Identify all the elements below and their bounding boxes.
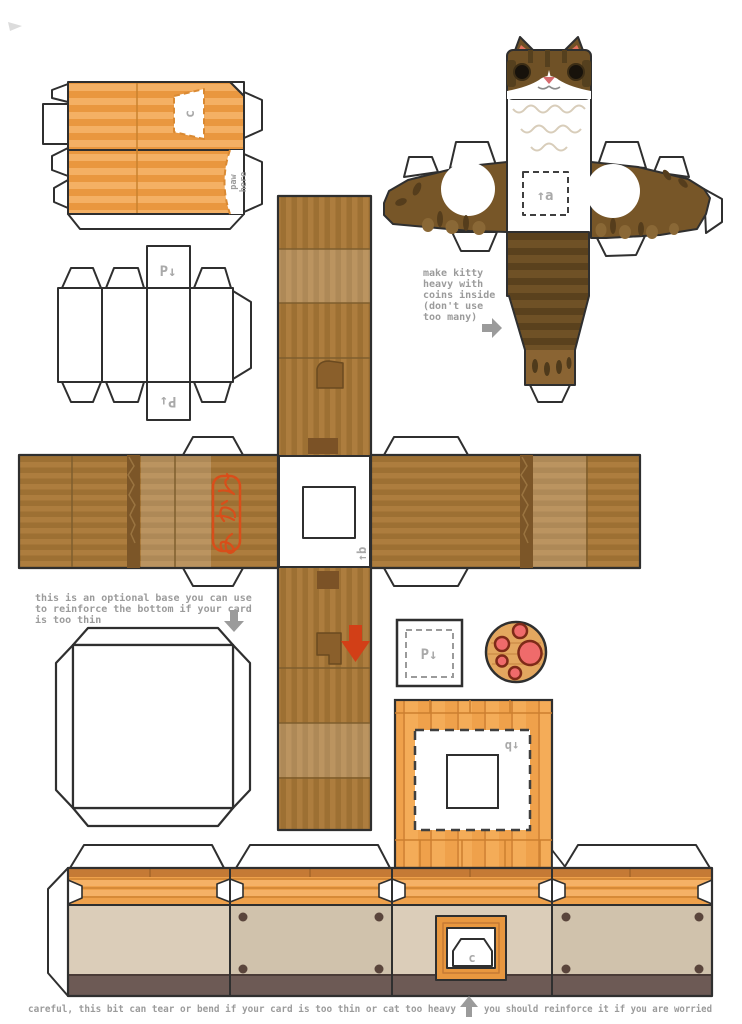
- fold-tab: [233, 291, 251, 379]
- fold-tab: [62, 382, 101, 402]
- note-make-kitty-heavy: make kitty heavy with coins inside (don'…: [423, 267, 502, 338]
- fold-tab: [62, 268, 101, 288]
- pillar-strip-piece: [58, 246, 251, 420]
- front-strip-piece: c: [48, 845, 712, 996]
- note-line: coins inside: [423, 289, 495, 301]
- arm-paw-cut: [586, 164, 640, 218]
- fold-tab: [73, 628, 233, 645]
- papercraft-canvas: c paw here P↓ P↓: [0, 0, 742, 1024]
- slot-hole: [308, 438, 338, 454]
- lid-flaps-piece: c paw here: [43, 82, 262, 229]
- fold-tab: [48, 868, 68, 996]
- fold-tab: [183, 568, 243, 586]
- fold-tab: [70, 845, 224, 868]
- fold-tab: [54, 180, 68, 208]
- flap-window: c: [436, 916, 506, 980]
- pillar-top-label: P↓: [160, 264, 177, 280]
- pillar-bottom-label: P↓: [160, 393, 177, 409]
- back-panel-label: ↑b: [505, 739, 519, 753]
- fold-tab: [68, 214, 244, 229]
- window-cutout: [303, 487, 355, 538]
- fold-tab: [56, 645, 73, 808]
- fold-tab: [244, 92, 262, 138]
- p-marker-label: P↓: [421, 647, 438, 663]
- fold-tab: [384, 568, 468, 586]
- arm-paw-cut: [441, 162, 495, 216]
- paw-pad-disc-piece: [486, 622, 546, 682]
- wood-rail-top-band: [68, 868, 712, 877]
- fold-tab: [52, 84, 68, 102]
- base-panel: [73, 645, 233, 808]
- fold-tab: [73, 808, 233, 826]
- cross-right-arm: [371, 455, 640, 568]
- lid-flap-bottom: [68, 150, 244, 214]
- note-line: is too thin: [35, 614, 101, 626]
- note-optional-base: this is an optional base you can use to …: [35, 592, 252, 632]
- papercraft-sheet: c paw here P↓ P↓: [0, 0, 742, 1024]
- torn-strip: [520, 455, 533, 568]
- fold-tab: [194, 268, 231, 288]
- paw-here-label-line1: paw: [229, 173, 239, 189]
- note-line: (don't use: [423, 301, 483, 312]
- base-trim: [68, 975, 712, 996]
- note-line: make kitty: [423, 267, 483, 279]
- lid-flap-top: [68, 82, 244, 150]
- up-arrow-icon: [460, 996, 478, 1017]
- fold-tab: [564, 845, 710, 868]
- fold-tab: [236, 845, 390, 868]
- back-panel-piece: ↑b: [395, 700, 566, 868]
- note-line: heavy with: [423, 278, 483, 290]
- slot-c-label: c: [183, 110, 198, 118]
- wall-panel-dark: [552, 905, 712, 975]
- fold-tab: [530, 385, 570, 402]
- fold-tab: [106, 382, 144, 402]
- wall-panel-dark: [230, 905, 392, 975]
- window-cutout: [447, 755, 498, 808]
- footer-note-left: careful, this bit can tear or bend if yo…: [28, 1004, 456, 1015]
- footer-note-right: you should reinforce it if you are worri…: [484, 1004, 712, 1015]
- note-line: too many): [423, 312, 477, 323]
- fold-tab: [183, 437, 243, 455]
- fold-tab: [106, 268, 144, 288]
- torn-patch: [317, 361, 343, 388]
- slot-hole: [317, 571, 339, 589]
- fold-tab: [233, 645, 250, 808]
- paw-here-label-line2: here: [239, 172, 249, 192]
- fold-tab: [452, 232, 497, 251]
- fold-tab: [43, 104, 68, 144]
- cat-piece: ↑a: [384, 37, 722, 402]
- fold-tab: [194, 382, 231, 402]
- fold-tab: [52, 148, 68, 176]
- p-marker-square-piece: P↓: [397, 620, 462, 686]
- note-line: to reinforce the bottom if your card: [35, 603, 252, 615]
- print-artifact: [8, 22, 22, 31]
- footer-note: careful, this bit can tear or bend if yo…: [28, 996, 712, 1017]
- note-line: this is an optional base you can use: [35, 592, 252, 604]
- pillar-body: [58, 288, 233, 382]
- corner-cut: [552, 850, 566, 868]
- optional-base-piece: [56, 628, 250, 826]
- torn-strip: [127, 455, 140, 568]
- fold-tab: [384, 437, 468, 455]
- right-arrow-icon: [482, 318, 502, 338]
- cat-right-eye: [568, 64, 584, 80]
- cat-left-eye: [514, 64, 530, 80]
- tuck-flap-label: c: [468, 951, 475, 965]
- center-window-label: ↑b: [355, 547, 369, 561]
- coin-slot-label: ↑a: [537, 188, 554, 204]
